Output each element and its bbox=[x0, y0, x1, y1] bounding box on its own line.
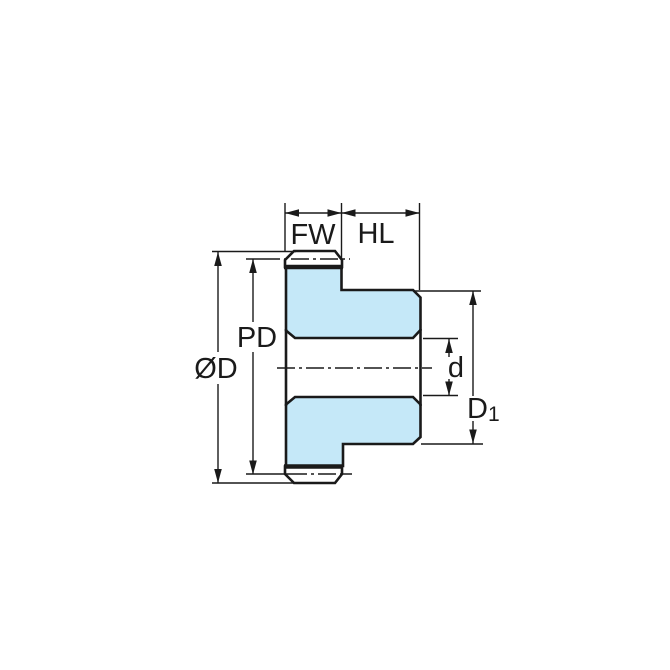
gear-body-upper-section bbox=[286, 268, 421, 339]
drawing-canvas: FW HL PD ØD d D1 bbox=[0, 0, 670, 670]
arrow-od-top bbox=[214, 252, 222, 266]
gear-cross-section bbox=[284, 251, 421, 483]
arrow-d-top bbox=[445, 339, 453, 353]
label-d: d bbox=[448, 352, 464, 384]
arrow-od-bottom bbox=[214, 469, 222, 483]
arrow-pd-bottom bbox=[249, 461, 257, 475]
arrow-d1-bottom bbox=[469, 430, 477, 444]
arrow-hl-right bbox=[406, 209, 420, 217]
label-d1-subscript: 1 bbox=[488, 403, 500, 426]
arrow-pd-top bbox=[249, 259, 257, 273]
label-pd: PD bbox=[237, 322, 277, 354]
label-d1: D1 bbox=[467, 393, 500, 426]
label-d1-base: D bbox=[467, 393, 488, 425]
label-fw: FW bbox=[290, 219, 336, 251]
gear-dimension-drawing: FW HL PD ØD d D1 bbox=[0, 0, 670, 670]
gear-body-lower-section bbox=[286, 397, 421, 466]
label-od: ØD bbox=[194, 353, 238, 385]
arrow-d1-top bbox=[469, 291, 477, 305]
label-hl: HL bbox=[357, 218, 394, 250]
arrow-fw-right bbox=[328, 209, 342, 217]
arrow-hl-left bbox=[342, 209, 356, 217]
arrow-fw-left bbox=[285, 209, 299, 217]
